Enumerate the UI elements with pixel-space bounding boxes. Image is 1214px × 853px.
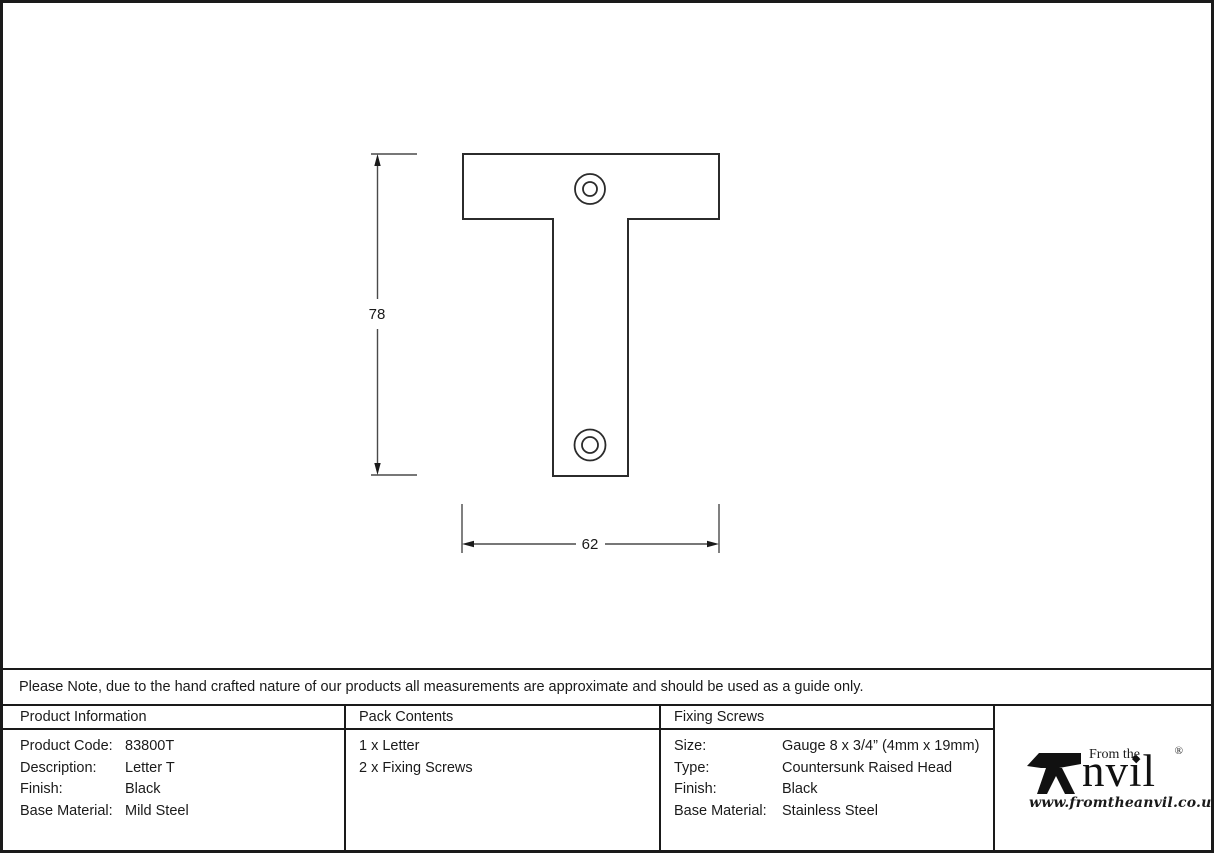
letter-t-outline: [463, 154, 719, 476]
base-material-row: Base Material: Mild Steel: [20, 801, 344, 823]
fixing-screws-section: Fixing Screws Size: Gauge 8 x 3/4” (4mm …: [661, 706, 995, 850]
finish-value: Black: [125, 779, 160, 801]
arrow-up-icon: [374, 154, 380, 166]
spec-sheet-page: 78 62 Please Note, due to the hand craft…: [0, 0, 1214, 853]
height-dimension-label: 78: [369, 306, 386, 323]
screw-size-label: Size:: [674, 736, 782, 758]
registered-trademark-icon: ®: [1175, 745, 1183, 757]
description-row: Description: Letter T: [20, 758, 344, 780]
pack-item: 2 x Fixing Screws: [359, 758, 659, 780]
product-code-row: Product Code: 83800T: [20, 736, 344, 758]
product-code-label: Product Code:: [20, 736, 125, 758]
base-material-value: Mild Steel: [125, 801, 189, 823]
arrow-right-icon: [707, 541, 719, 547]
measurement-note: Please Note, due to the hand crafted nat…: [0, 668, 1214, 706]
pack-contents-header: Pack Contents: [346, 706, 659, 730]
screw-type-value: Countersunk Raised Head: [782, 758, 952, 780]
screw-hole-top: [575, 174, 605, 204]
finish-row: Finish: Black: [20, 779, 344, 801]
technical-drawing: 78 62: [0, 0, 1214, 668]
arrow-left-icon: [462, 541, 474, 547]
finish-label: Finish:: [20, 779, 125, 801]
pack-item: 1 x Letter: [359, 736, 659, 758]
arrow-down-icon: [374, 463, 380, 475]
screw-base-material-value: Stainless Steel: [782, 801, 878, 823]
screw-type-label: Type:: [674, 758, 782, 780]
note-text: Please Note, due to the hand crafted nat…: [19, 679, 863, 695]
diamond-i-dot-icon: ◆: [1132, 752, 1140, 765]
product-information-section: Product Information Product Code: 83800T…: [3, 706, 346, 850]
logo-brand-text: nvil: [1082, 746, 1156, 796]
screw-type-row: Type: Countersunk Raised Head: [674, 758, 993, 780]
screw-finish-row: Finish: Black: [674, 779, 993, 801]
base-material-label: Base Material:: [20, 801, 125, 823]
logo-website: www.fromtheanvil.co.uk: [1029, 795, 1179, 811]
spec-table: Product Information Product Code: 83800T…: [3, 706, 1211, 850]
fixing-screws-header: Fixing Screws: [661, 706, 993, 730]
anvil-a-icon: [1027, 749, 1081, 795]
screw-finish-value: Black: [782, 779, 817, 801]
screw-base-material-label: Base Material:: [674, 801, 782, 823]
from-the-anvil-logo: From the nvil ◆ ® www.fromtheanvil.co.uk: [1027, 746, 1179, 814]
product-code-value: 83800T: [125, 736, 174, 758]
screw-size-value: Gauge 8 x 3/4” (4mm x 19mm): [782, 736, 979, 758]
description-label: Description:: [20, 758, 125, 780]
pack-contents-section: Pack Contents 1 x Letter 2 x Fixing Scre…: [346, 706, 661, 850]
screw-finish-label: Finish:: [674, 779, 782, 801]
brand-logo-cell: From the nvil ◆ ® www.fromtheanvil.co.uk: [995, 706, 1211, 850]
screw-base-material-row: Base Material: Stainless Steel: [674, 801, 993, 823]
screw-hole-bottom: [575, 430, 606, 461]
width-dimension-label: 62: [582, 536, 599, 553]
product-information-header: Product Information: [3, 706, 344, 730]
screw-size-row: Size: Gauge 8 x 3/4” (4mm x 19mm): [674, 736, 993, 758]
description-value: Letter T: [125, 758, 175, 780]
